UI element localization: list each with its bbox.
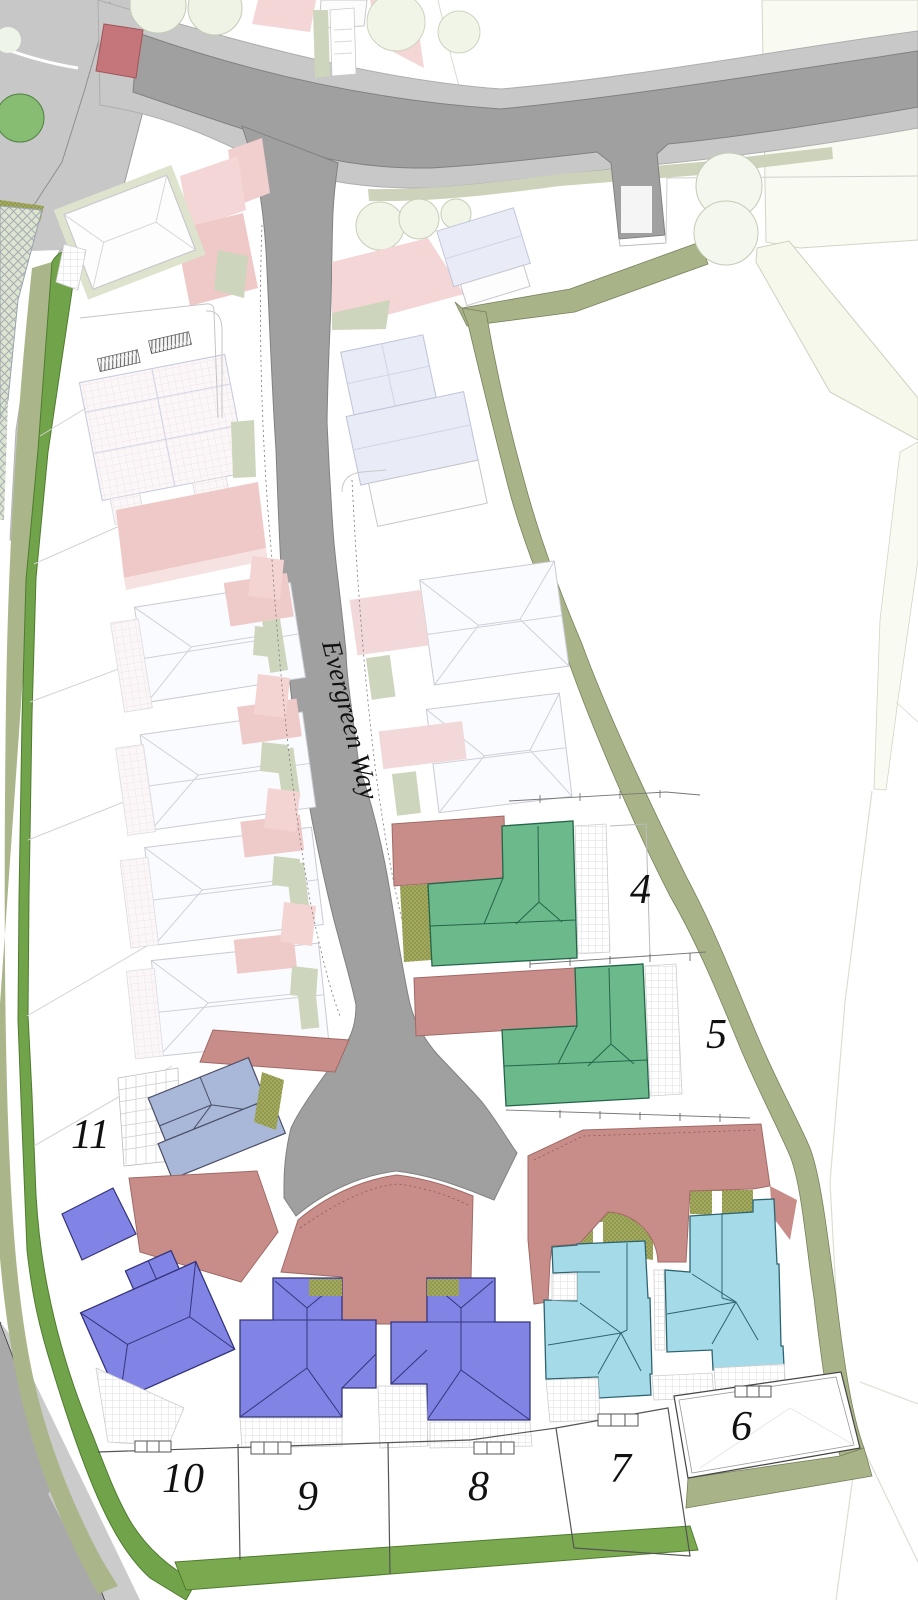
svg-text:10: 10 <box>162 1456 204 1502</box>
svg-text:5: 5 <box>706 1012 727 1058</box>
svg-text:7: 7 <box>610 1446 633 1492</box>
svg-text:6: 6 <box>731 1404 752 1450</box>
svg-text:11: 11 <box>71 1112 110 1158</box>
svg-text:4: 4 <box>630 867 651 913</box>
svg-text:8: 8 <box>468 1464 489 1510</box>
svg-text:9: 9 <box>297 1474 318 1520</box>
